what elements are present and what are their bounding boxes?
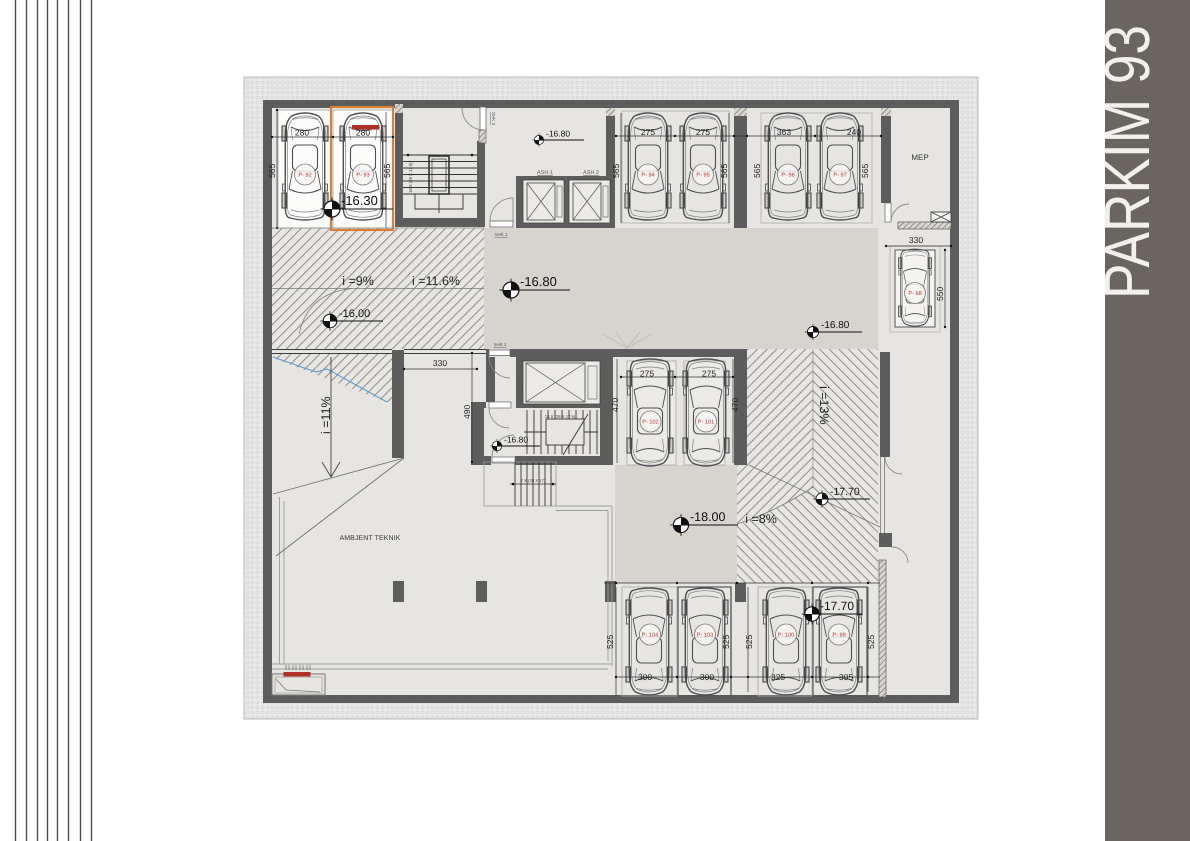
svg-text:-16.80: -16.80 [546,129,570,139]
svg-text:565: 565 [267,164,277,178]
svg-text:550: 550 [935,287,945,301]
svg-text:P- 94: P- 94 [641,173,654,179]
svg-text:363: 363 [777,127,791,137]
svg-text:P- 98: P- 98 [908,291,921,297]
svg-text:280: 280 [356,128,370,138]
svg-text:565: 565 [719,164,729,178]
svg-text:490: 490 [462,405,472,419]
svg-text:P- 95: P- 95 [696,173,709,179]
svg-text:565: 565 [752,164,762,178]
svg-text:SHK 2: SHK 2 [493,342,507,347]
svg-text:565: 565 [611,164,621,178]
svg-text:-16.80: -16.80 [504,435,528,445]
svg-text:-16.30: -16.30 [341,193,378,208]
svg-text:7 X (28 X 17): 7 X (28 X 17) [521,478,546,483]
svg-text:300: 300 [700,672,714,682]
svg-text:P- 104: P- 104 [642,633,658,639]
svg-text:i =8%: i =8% [745,512,777,526]
svg-text:18 X (28 X 17.5): 18 X (28 X 17.5) [545,414,576,419]
svg-text:275: 275 [702,369,716,379]
svg-text:ASH 2: ASH 2 [583,170,599,176]
svg-text:ASH 3: ASH 3 [517,381,522,395]
svg-text:SHK 3: SHK 3 [491,112,496,126]
svg-text:525: 525 [721,635,731,649]
svg-text:-17.70: -17.70 [830,486,860,498]
svg-text:470: 470 [610,398,620,412]
svg-text:P- 102: P- 102 [642,420,658,426]
svg-text:PARKIM 93: PARKIM 93 [1091,25,1163,299]
svg-text:-18.00: -18.00 [690,510,725,524]
svg-text:525: 525 [605,635,615,649]
svg-text:SHK 1: SHK 1 [494,232,508,237]
svg-text:P- 99: P- 99 [832,633,845,639]
svg-text:565: 565 [860,164,870,178]
svg-text:275: 275 [641,127,655,137]
svg-text:P- 93: P- 93 [356,173,369,179]
svg-text:P- 92: P- 92 [298,173,311,179]
svg-text:300: 300 [638,672,652,682]
svg-text:-17.70: -17.70 [820,599,854,613]
svg-text:275: 275 [696,127,710,137]
svg-text:-16.80: -16.80 [520,274,557,289]
svg-text:470: 470 [730,398,740,412]
svg-text:305: 305 [839,672,853,682]
svg-text:18 X (28 X 17.5): 18 X (28 X 17.5) [408,162,413,193]
svg-text:i =13%: i =13% [817,386,831,425]
svg-text:330: 330 [433,358,447,368]
svg-text:-16.80: -16.80 [821,320,850,331]
svg-text:P- 100: P- 100 [778,633,794,639]
svg-text:-16.00: -16.00 [339,308,370,320]
svg-text:MEP: MEP [911,153,928,162]
svg-text:i =11.6%: i =11.6% [412,274,460,288]
svg-text:280: 280 [295,128,309,138]
svg-text:275: 275 [640,369,654,379]
svg-text:P- 96: P- 96 [781,173,794,179]
svg-text:325: 325 [771,672,785,682]
svg-text:525: 525 [866,635,876,649]
svg-text:P- 97: P- 97 [833,173,846,179]
svg-text:P- 103: P- 103 [697,633,713,639]
svg-text:i =11%: i =11% [319,396,333,434]
svg-text:525: 525 [744,635,754,649]
svg-text:AMBJENT TEKNIK: AMBJENT TEKNIK [339,535,400,542]
svg-text:240: 240 [847,127,861,137]
svg-text:i =9%: i =9% [342,274,374,288]
svg-text:P- 101: P- 101 [698,420,714,426]
svg-text:ASH 1: ASH 1 [537,170,553,176]
svg-text:565: 565 [382,164,392,178]
svg-text:330: 330 [909,235,923,245]
